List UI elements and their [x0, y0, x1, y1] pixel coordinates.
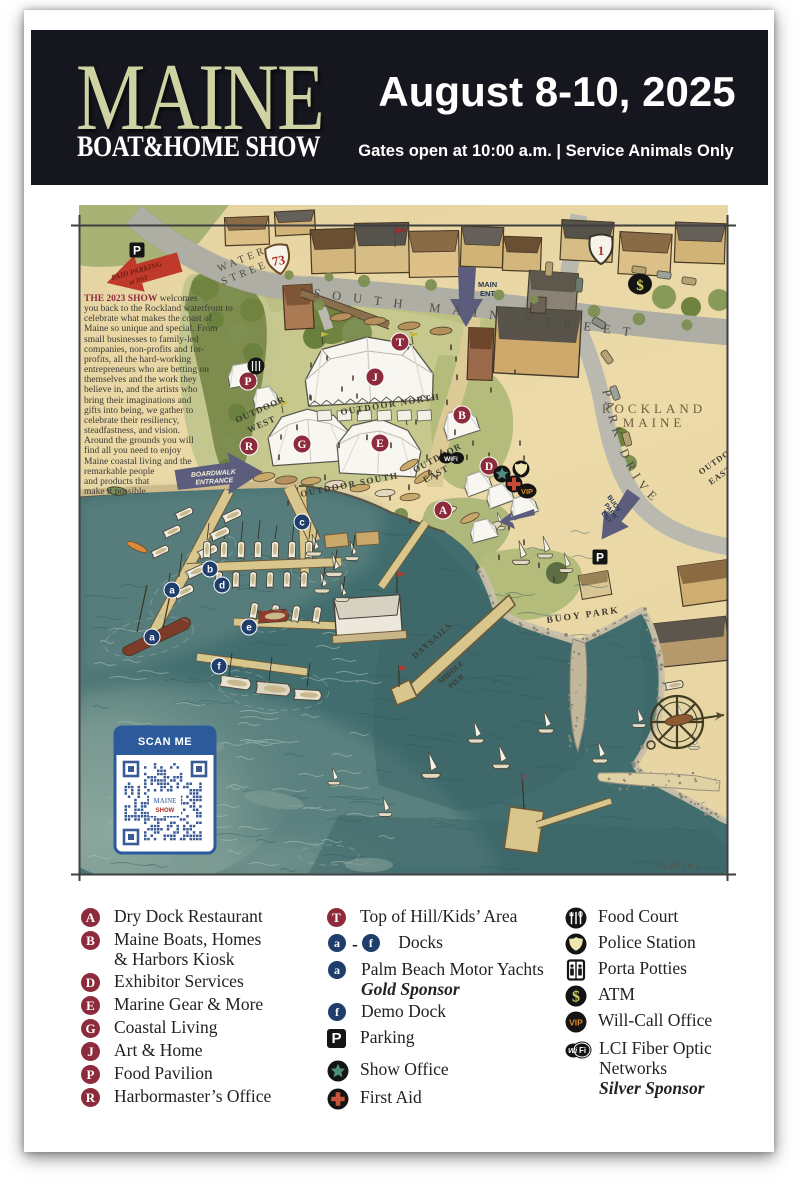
svg-text:Wi: Wi	[568, 1046, 578, 1055]
svg-text:ROCKLAND: ROCKLAND	[602, 401, 706, 416]
svg-text:$: $	[636, 278, 644, 294]
svg-text:1: 1	[598, 243, 605, 258]
svg-text:P: P	[133, 244, 141, 258]
svg-text:e: e	[246, 623, 252, 634]
svg-text:SHOW: SHOW	[156, 808, 175, 814]
svg-text:b: b	[207, 565, 213, 576]
svg-text:VIP: VIP	[569, 1018, 583, 1028]
svg-text:a: a	[149, 633, 155, 644]
svg-text:J: J	[372, 372, 378, 384]
svg-text:A: A	[439, 505, 448, 517]
svg-text:$: $	[572, 989, 580, 1006]
svg-text:MAINE: MAINE	[154, 797, 177, 805]
svg-text:MAINE: MAINE	[623, 415, 686, 430]
svg-text:G: G	[298, 439, 307, 451]
svg-text:D: D	[485, 461, 493, 473]
svg-text:E: E	[376, 438, 384, 450]
svg-text:a: a	[169, 586, 175, 597]
svg-text:MAIN: MAIN	[478, 280, 497, 289]
svg-text:Fi: Fi	[579, 1046, 586, 1055]
svg-text:Adkins: Adkins	[658, 860, 701, 872]
svg-text:SCAN ME: SCAN ME	[138, 736, 192, 748]
svg-text:T: T	[396, 337, 404, 349]
svg-text:WiFi: WiFi	[444, 456, 458, 463]
svg-text:B: B	[458, 410, 466, 422]
svg-text:VIP: VIP	[521, 487, 533, 496]
svg-text:c: c	[299, 518, 305, 529]
svg-text:ENT: ENT	[480, 289, 495, 298]
svg-text:d: d	[219, 581, 225, 592]
svg-text:P: P	[596, 551, 604, 565]
